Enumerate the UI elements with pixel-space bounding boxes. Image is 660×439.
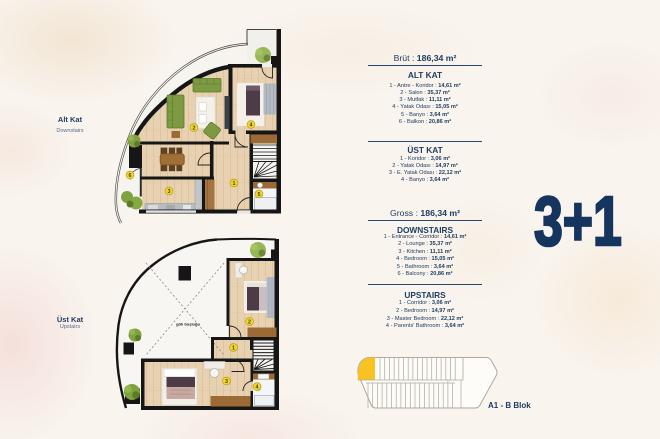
svg-text:3: 3 bbox=[168, 189, 171, 195]
svg-text:4: 4 bbox=[256, 385, 259, 391]
svg-text:1: 1 bbox=[232, 346, 235, 352]
svg-text:gök boşluğu: gök boşluğu bbox=[176, 322, 200, 327]
svg-text:2: 2 bbox=[193, 126, 196, 132]
svg-text:1: 1 bbox=[233, 181, 236, 187]
svg-text:3: 3 bbox=[225, 379, 228, 385]
svg-text:4: 4 bbox=[250, 123, 253, 129]
svg-text:5: 5 bbox=[258, 192, 261, 198]
svg-text:2: 2 bbox=[248, 320, 251, 326]
svg-text:6: 6 bbox=[129, 173, 132, 179]
